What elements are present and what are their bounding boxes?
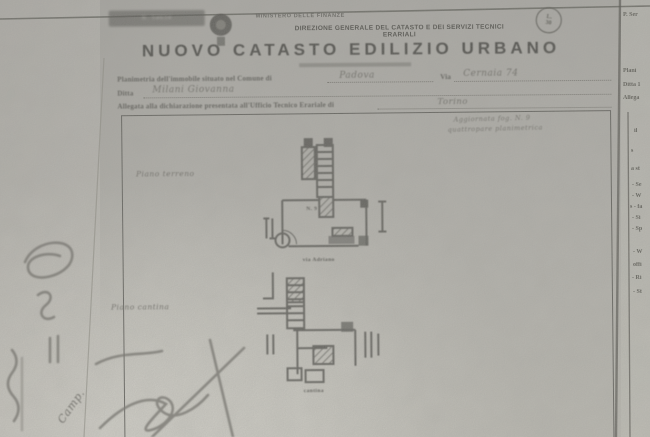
right-page-fragment: - Se	[632, 182, 642, 188]
right-page-fragment: - Ri	[632, 275, 642, 281]
form-line3-label: Allegata alla dichiarazione presentata a…	[117, 101, 334, 111]
right-page-fragment: a st	[631, 166, 640, 172]
plan-frame	[121, 110, 615, 437]
plan-upper-room-label: N. 9	[306, 206, 317, 212]
right-page-fragment: - W	[633, 249, 642, 255]
right-page-fragment: - St	[633, 289, 642, 295]
plan-upper-caption: via Adriano	[303, 257, 335, 263]
form-line1-value: Padova	[339, 71, 375, 81]
serial-stamp-text: N. 54634	[142, 15, 172, 21]
duty-stamp-amount: 30	[545, 20, 552, 27]
plan-lower-caption: cantina	[304, 388, 324, 394]
form-line3-dots	[377, 99, 611, 110]
serial-stamp: N. 54634	[109, 10, 205, 27]
right-page-fragment: - Si	[632, 215, 641, 221]
right-page-fragment: Allega	[623, 95, 639, 101]
right-page-fragment: s	[631, 148, 633, 154]
form-line2-label: Ditta	[117, 90, 133, 98]
ministry-line2: DIREZIONE GENERALE DEL CATASTO E DEI SER…	[282, 23, 517, 39]
form-line1-value2: Cernaia 74	[463, 68, 518, 78]
page-title: NUOVO CATASTO EDILIZIO URBANO	[141, 38, 561, 61]
form-line1-label2: Via	[440, 73, 451, 81]
form-line3-value: Torino	[437, 97, 468, 107]
form-page: N. 54634 MINISTERO DELLE FINANZE DIREZIO…	[0, 0, 650, 437]
plan-lower-floor-label: Piano cantina	[111, 302, 169, 311]
right-page-fragment: - W	[632, 193, 641, 199]
ministry-line1: MINISTERO DELLE FINANZE	[233, 13, 368, 20]
right-page-fragment: P. Ser	[623, 12, 638, 18]
scanned-cadastral-document: N. 54634 MINISTERO DELLE FINANZE DIREZIO…	[0, 0, 650, 437]
duty-stamp: L. 30	[534, 6, 563, 35]
right-page-fragment: Ditta 1	[623, 82, 641, 88]
subtitle-smudge	[299, 62, 411, 67]
right-page-fragment: Plani	[623, 68, 636, 74]
form-line1-label: Planimetria dell'immobile situato nel Co…	[117, 74, 272, 83]
plan-upper-floor-label: Piano terreno	[136, 169, 195, 178]
form-line2-value: Milani Giovanna	[152, 85, 234, 96]
right-page-fragment: offi	[633, 262, 642, 268]
right-page-fragment: s - fa	[630, 204, 642, 210]
right-page-fragment: - Sp	[632, 226, 642, 232]
right-page-fragment: il	[634, 128, 637, 134]
